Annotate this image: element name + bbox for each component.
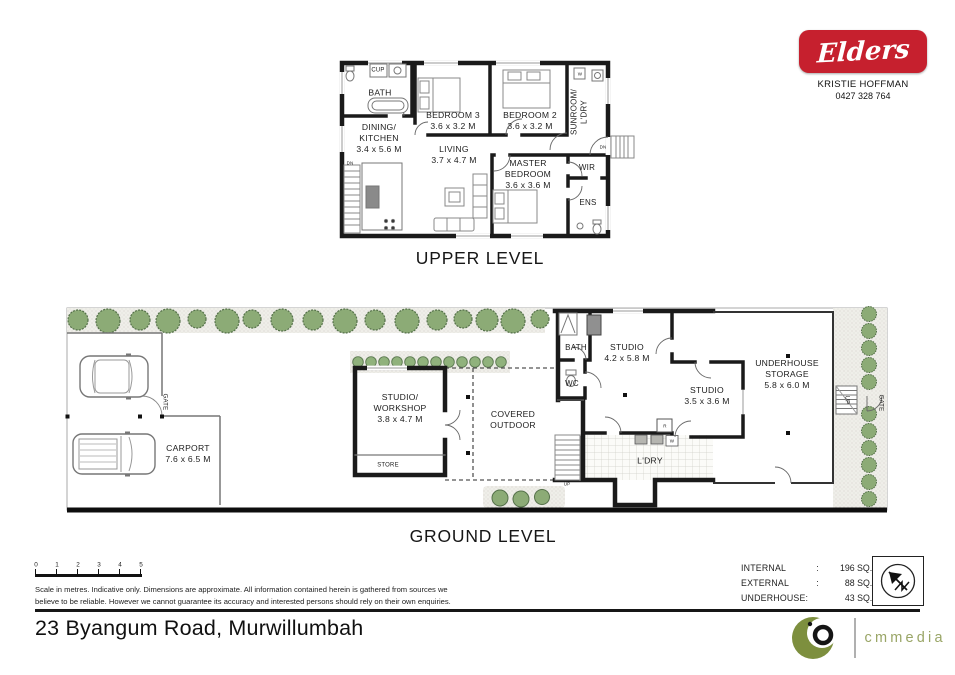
room-name-line: UNDERHOUSE <box>755 358 819 369</box>
upper-level-title: UPPER LEVEL <box>416 248 544 269</box>
post-icon <box>466 451 470 455</box>
room-label-cup: CUP <box>371 66 384 74</box>
scale-bar: 0 1 2 3 4 5 <box>35 562 150 580</box>
property-address: 23 Byangum Road, Murwillumbah <box>35 616 363 641</box>
area-colon: : <box>811 578 824 588</box>
room-label-workshop: STUDIO/ WORKSHOP 3.8 x 4.7 M <box>373 392 426 426</box>
room-label-ldry: L'DRY <box>637 455 663 466</box>
tv-unit-icon <box>473 174 487 218</box>
area-label: EXTERNAL <box>741 578 811 588</box>
bathtub-icon <box>368 98 408 113</box>
ensuite-fixtures <box>577 220 601 234</box>
area-row: INTERNAL : 196 SQ.M. <box>741 560 882 575</box>
kitchen-bench-icon <box>362 163 402 230</box>
room-dims: 3.7 x 4.7 M <box>431 155 476 166</box>
room-label-carport: CARPORT 7.6 x 6.5 M <box>165 443 210 465</box>
agent-branding: Elders KRISTIE HOFFMAN 0427 328 764 <box>799 30 927 101</box>
room-label-studio-small: STUDIO 3.5 x 3.6 M <box>684 385 729 407</box>
area-colon: : <box>811 563 824 573</box>
elders-logo-text: Elders <box>816 34 910 69</box>
room-label-ens: ENS <box>579 198 596 208</box>
media-brand-name: cmmedia <box>865 630 946 646</box>
room-dims: 3.6 x 3.2 M <box>426 121 480 132</box>
ground-level-title: GROUND LEVEL <box>410 526 557 547</box>
scale-tick <box>56 569 57 575</box>
room-dims: 3.5 x 3.6 M <box>684 396 729 407</box>
upper-level-plan: CUP BATH DINING/ KITCHEN 3.4 x 5.6 M BED… <box>330 50 650 250</box>
room-name-line: STUDIO <box>604 342 649 353</box>
room-name-line: COVERED <box>490 409 536 420</box>
area-label: INTERNAL <box>741 563 811 573</box>
scale-number: 1 <box>55 561 59 569</box>
room-label-covered-outdoor: COVERED OUTDOOR <box>490 409 536 431</box>
room-name-line: LIVING <box>431 144 476 155</box>
agent-phone: 0427 328 764 <box>799 91 927 101</box>
room-dims: 3.6 x 3.2 M <box>503 121 557 132</box>
scale-number: 5 <box>139 561 143 569</box>
post-icon <box>786 431 790 435</box>
room-name-line: OUTDOOR <box>490 420 536 431</box>
scale-bar-line <box>35 574 142 577</box>
room-name-line: STUDIO/ <box>373 392 426 403</box>
scale-number: 2 <box>76 561 80 569</box>
room-dims: 3.4 x 5.6 M <box>356 145 401 156</box>
washer-label-ground: W <box>670 438 674 444</box>
room-name-line: MASTER <box>505 158 551 169</box>
stairs-label-dn-left: DN <box>347 160 354 166</box>
room-label-studio-main: STUDIO 4.2 x 5.8 M <box>604 342 649 364</box>
elders-logo: Elders <box>799 30 927 73</box>
sofa-icon <box>434 218 474 231</box>
scale-tick <box>77 569 78 575</box>
area-row: EXTERNAL : 88 SQ.M. <box>741 575 882 590</box>
car-icon-bottom <box>73 432 155 477</box>
room-dims: 5.8 x 6.0 M <box>755 381 819 392</box>
room-label-wir: WIR <box>579 163 595 173</box>
ground-level-plan: CARPORT 7.6 x 6.5 M GATE STUDIO/ WORKSHO… <box>55 298 900 523</box>
disclaimer-line: Scale in metres. Indicative only. Dimens… <box>35 584 465 596</box>
agent-name: KRISTIE HOFFMAN <box>799 79 927 90</box>
media-brand-logo: cmmedia <box>783 612 946 664</box>
room-name-line: CARPORT <box>165 443 210 454</box>
room-label-underhouse: UNDERHOUSE STORAGE 5.8 x 6.0 M <box>755 358 819 392</box>
room-label-bath-ground: BATH <box>565 343 587 353</box>
upper-interior-stairs <box>344 165 360 233</box>
room-label-bedroom3: BEDROOM 3 3.6 x 3.2 M <box>426 110 480 132</box>
room-name-line: STUDIO <box>684 385 729 396</box>
scale-number: 3 <box>97 561 101 569</box>
workshop-windows <box>367 366 407 371</box>
scale-tick <box>35 569 36 575</box>
room-label-wc: WC <box>565 379 579 389</box>
gate-label-left: GATE <box>161 394 169 411</box>
scale-tick <box>119 569 120 575</box>
stairs-label-dn-right: DN <box>600 144 607 150</box>
scale-tick <box>98 569 99 575</box>
bush-cluster-bottom <box>492 490 550 508</box>
scale-number: 4 <box>118 561 122 569</box>
room-label-master: MASTER BEDROOM 3.6 x 3.6 M <box>505 158 551 192</box>
bed-icon-bedroom3 <box>418 78 460 112</box>
post-icon <box>466 395 470 399</box>
room-label-store: STORE <box>377 461 399 469</box>
room-label-bedroom2: BEDROOM 2 3.6 x 3.2 M <box>503 110 557 132</box>
upper-exterior-stairs <box>611 136 634 158</box>
bed-icon-master <box>493 190 537 223</box>
area-label: UNDERHOUSE: <box>741 593 811 603</box>
disclaimer-line: believe to be reliable. However we canno… <box>35 596 465 608</box>
shower-icon <box>559 313 577 335</box>
car-icon-top <box>80 354 148 400</box>
floorplan-page: Elders KRISTIE HOFFMAN 0427 328 764 <box>0 0 955 675</box>
coffee-table-icon <box>445 188 464 206</box>
room-name-line: WORKSHOP <box>373 403 426 414</box>
room-label-dining-kitchen: DINING/ KITCHEN 3.4 x 5.6 M <box>356 122 401 156</box>
cupboard-icon <box>587 315 601 335</box>
gate-label-right: GATE <box>877 395 885 412</box>
room-name-line: BEDROOM <box>505 169 551 180</box>
north-arrow-icon <box>875 559 921 603</box>
ground-floorplan-graphic <box>55 298 900 523</box>
ground-stairs-internal <box>555 435 580 480</box>
disclaimer-text: Scale in metres. Indicative only. Dimens… <box>35 584 465 608</box>
scale-tick <box>140 569 141 575</box>
room-label-sunroom-ldry: SUNROOM/ L'DRY <box>570 89 591 135</box>
area-summary-table: INTERNAL : 196 SQ.M. EXTERNAL : 88 SQ.M.… <box>741 560 882 606</box>
washer-label: W <box>577 71 581 77</box>
room-name-line: BEDROOM 3 <box>426 110 480 121</box>
fridge-label-r: R <box>663 423 666 429</box>
room-name-line: KITCHEN <box>356 133 401 144</box>
cmmedia-crescent-icon <box>783 612 845 664</box>
room-name-line: STORAGE <box>755 369 819 380</box>
room-name-line: SUNROOM/ <box>570 89 580 135</box>
room-dims: 3.6 x 3.6 M <box>505 181 551 192</box>
room-dims: 3.8 x 4.7 M <box>373 415 426 426</box>
room-name-line: BEDROOM 2 <box>503 110 557 121</box>
room-name-line: L'DRY <box>580 89 590 135</box>
toilet-icon <box>346 66 354 81</box>
room-name-line: DINING/ <box>356 122 401 133</box>
north-indicator <box>872 556 924 606</box>
post-icon <box>623 393 627 397</box>
stairs-label-up-right: UP <box>843 396 851 405</box>
room-dims: 4.2 x 5.8 M <box>604 353 649 364</box>
stairs-label-up-left: UP <box>564 481 571 487</box>
scale-number: 0 <box>34 561 38 569</box>
logo-divider-line <box>854 618 856 658</box>
room-label-living: LIVING 3.7 x 4.7 M <box>431 144 476 166</box>
room-dims: 7.6 x 6.5 M <box>165 454 210 465</box>
room-label-bath-upper: BATH <box>368 87 391 98</box>
area-row: UNDERHOUSE: 43 SQ.M. <box>741 590 882 605</box>
bed-icon-bedroom2 <box>503 70 550 108</box>
